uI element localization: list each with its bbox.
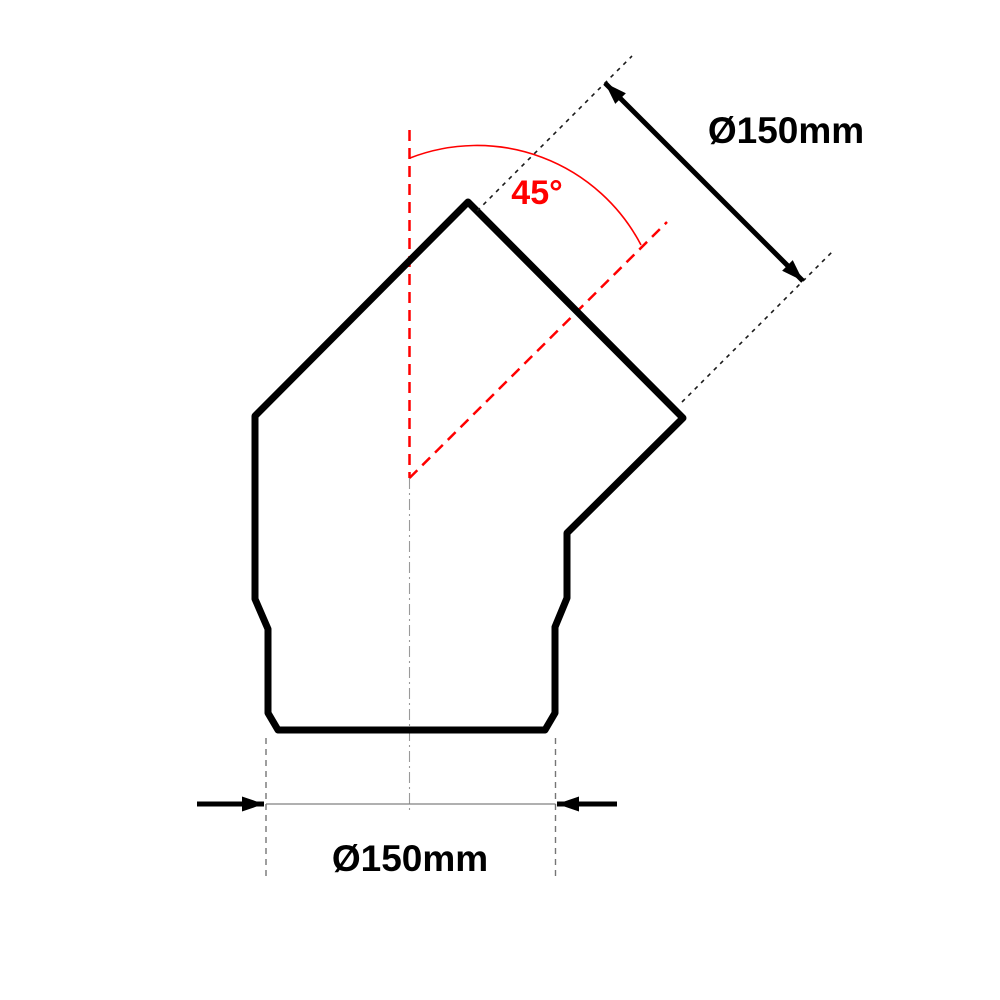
elbow-dimension-drawing: Ø150mm 45° Ø150mm (0, 0, 1000, 1000)
elbow-outline (255, 202, 683, 730)
drawing-canvas: Ø150mm 45° Ø150mm (0, 0, 1000, 1000)
angle-label: 45° (511, 174, 562, 212)
angled-centerline-red (410, 222, 668, 478)
extension-line-lower-right (682, 251, 833, 402)
top-diameter-label: Ø150mm (708, 110, 864, 151)
bottom-diameter-label: Ø150mm (332, 838, 488, 879)
top-dimension-group: Ø150mm (477, 56, 864, 402)
bottom-dimension-group: Ø150mm (197, 738, 617, 879)
